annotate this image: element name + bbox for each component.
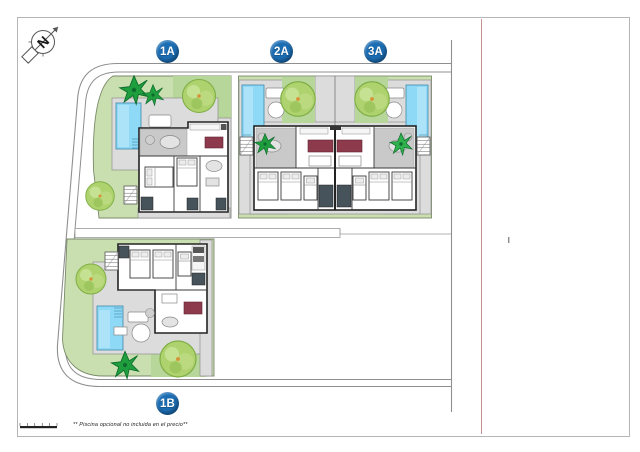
dining-table [339, 156, 361, 166]
bathroom [187, 198, 198, 210]
bed [130, 250, 150, 278]
tree-icon [86, 182, 115, 211]
badge-unit-1b: 1B [156, 392, 179, 415]
bed [353, 176, 366, 200]
kitchen-counter [342, 128, 370, 134]
footnote-text: ** Piscina opcional no incluida en el pr… [73, 422, 188, 428]
bed [178, 252, 191, 276]
tree-icon [183, 80, 216, 113]
sofa [184, 302, 202, 314]
bed [369, 172, 389, 200]
villa-1a-house [139, 122, 228, 212]
sun-lounger [128, 312, 148, 322]
sofa [308, 140, 333, 152]
dining-table [309, 156, 331, 166]
stairs [105, 252, 118, 270]
badge-unit-2a: 2A [270, 40, 293, 63]
villa-2a-3a [239, 76, 432, 218]
tree-icon [355, 82, 390, 117]
tree-icon [76, 264, 106, 294]
kitchen-counter [190, 124, 220, 130]
tree-icon [281, 82, 316, 117]
sofa [337, 140, 362, 152]
dining-table [162, 294, 177, 303]
bed [258, 172, 278, 200]
bathroom [141, 197, 153, 210]
sun-lounger [149, 115, 171, 127]
dining-table [206, 161, 222, 172]
small-tick-mark [508, 237, 509, 243]
badge-unit-3a: 3A [364, 40, 387, 63]
site-plan-drawing: N [0, 0, 640, 452]
villa-2a-3a-house [254, 126, 416, 210]
bed [177, 158, 197, 186]
tree-icon [160, 341, 196, 377]
stairs [417, 137, 430, 155]
bed [145, 167, 173, 187]
round-table [132, 324, 150, 342]
bathroom [337, 185, 351, 207]
bathroom [319, 185, 333, 207]
villa-1a-pool [116, 103, 141, 149]
side-table [114, 327, 127, 335]
bathroom [119, 246, 129, 258]
kitchen-counter [300, 128, 328, 134]
bathroom [192, 273, 205, 285]
stairs [124, 186, 137, 204]
site-plan-page: N [0, 0, 640, 452]
villa-1b [63, 239, 215, 379]
villa-1a [86, 76, 231, 218]
bed [304, 176, 317, 200]
bed [153, 250, 173, 278]
bed [281, 172, 301, 200]
badge-unit-1a: 1A [156, 40, 179, 63]
bed [392, 172, 412, 200]
sofa [205, 137, 223, 148]
walkway-band [75, 229, 340, 238]
stairs [240, 137, 253, 155]
